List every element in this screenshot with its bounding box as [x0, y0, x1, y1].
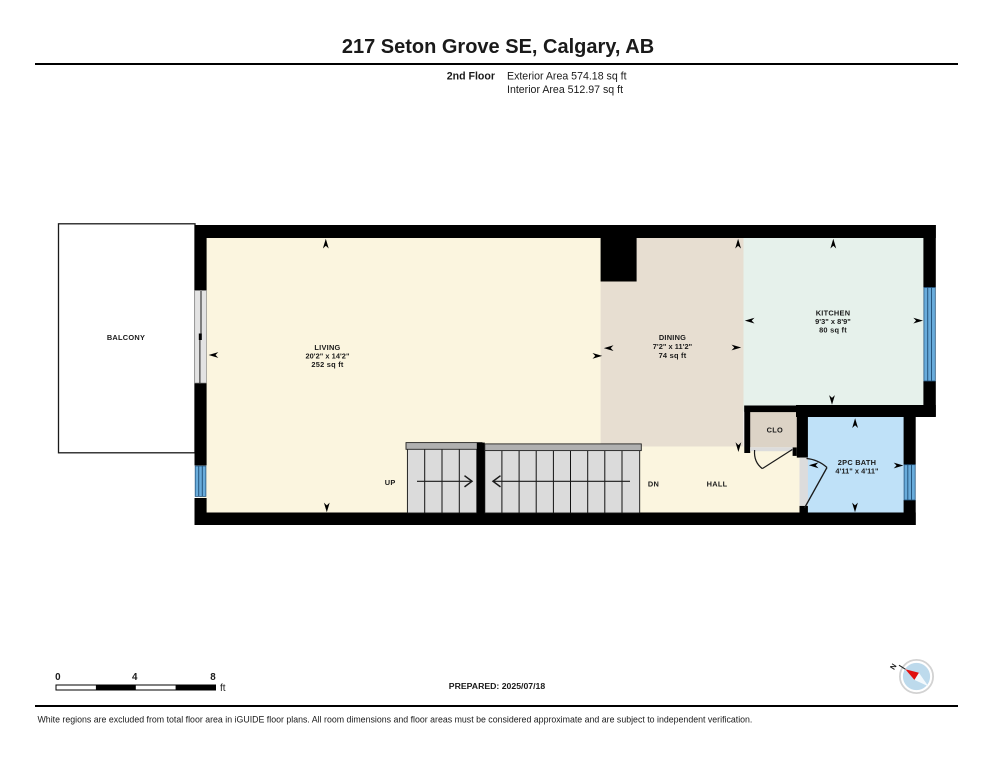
svg-text:CLO: CLO [767, 425, 783, 434]
svg-text:80 sq ft: 80 sq ft [819, 325, 847, 334]
svg-text:4: 4 [132, 672, 138, 683]
svg-text:2nd Floor: 2nd Floor [447, 71, 495, 83]
svg-text:UP: UP [385, 478, 396, 487]
svg-text:DINING: DINING [659, 333, 686, 342]
svg-text:DN: DN [648, 479, 659, 488]
svg-text:252 sq ft: 252 sq ft [311, 360, 344, 369]
svg-text:PREPARED: 2025/07/18: PREPARED: 2025/07/18 [449, 681, 546, 691]
svg-text:8: 8 [210, 672, 216, 683]
svg-text:HALL: HALL [707, 479, 728, 488]
svg-text:White regions are excluded fro: White regions are excluded from total fl… [38, 715, 753, 725]
svg-text:0: 0 [55, 672, 61, 683]
svg-text:BALCONY: BALCONY [107, 333, 145, 342]
svg-text:217 Seton Grove SE, Calgary, A: 217 Seton Grove SE, Calgary, AB [342, 36, 654, 58]
svg-text:Exterior Area 574.18 sq ft: Exterior Area 574.18 sq ft [507, 71, 627, 83]
svg-text:74 sq ft: 74 sq ft [659, 351, 687, 360]
svg-text:4'11" x 4'11": 4'11" x 4'11" [835, 466, 879, 475]
svg-text:ft: ft [220, 683, 226, 694]
svg-text:7'2" x 11'2": 7'2" x 11'2" [653, 342, 693, 351]
svg-text:Interior Area 512.97 sq ft: Interior Area 512.97 sq ft [507, 84, 623, 96]
